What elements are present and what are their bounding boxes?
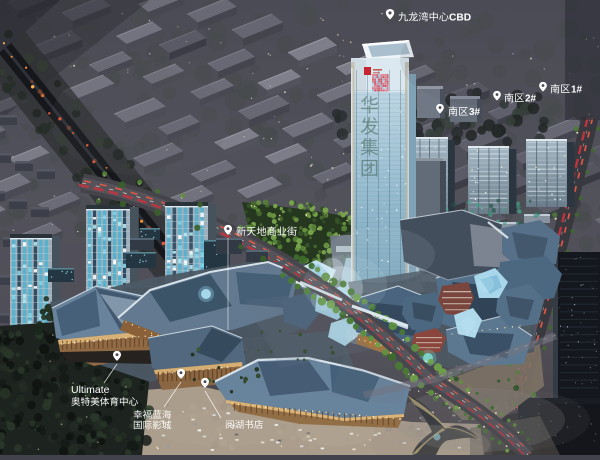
svg-text:2#: 2#	[525, 94, 537, 105]
svg-text:CBD: CBD	[449, 13, 471, 24]
svg-text:1#: 1#	[571, 85, 583, 96]
svg-text:Ultimate: Ultimate	[71, 384, 110, 396]
svg-text:3#: 3#	[469, 107, 481, 118]
